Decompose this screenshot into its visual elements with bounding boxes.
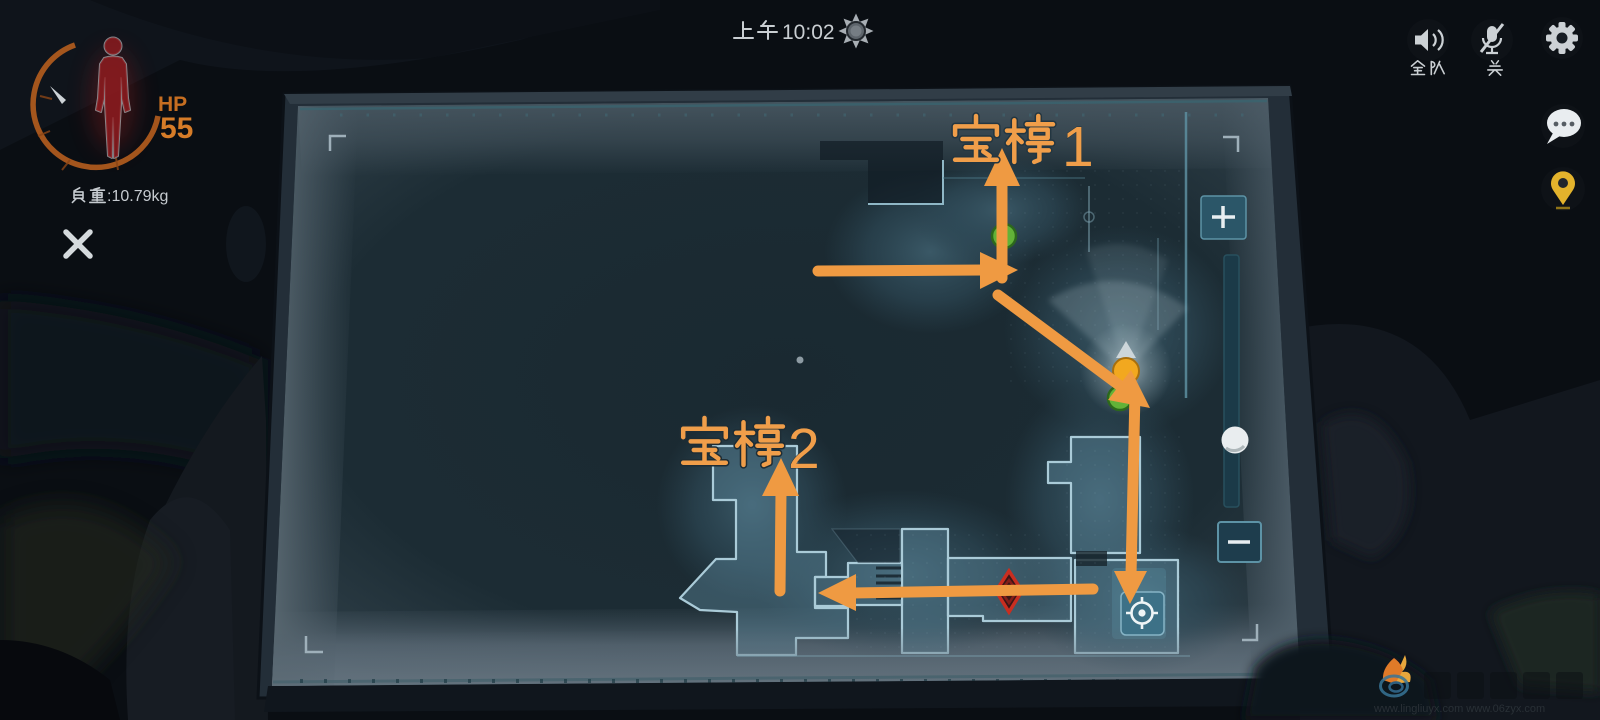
- svg-text:www.lingliuyx.com www.06zyx.c: www.lingliuyx.com www.06zyx.com: [1373, 703, 1545, 715]
- svg-text:1: 1: [1062, 115, 1094, 179]
- svg-text::10.79kg: :10.79kg: [107, 188, 168, 205]
- svg-text:2: 2: [788, 417, 820, 481]
- svg-text:55: 55: [160, 112, 193, 145]
- svg-text:10:02: 10:02: [782, 21, 835, 44]
